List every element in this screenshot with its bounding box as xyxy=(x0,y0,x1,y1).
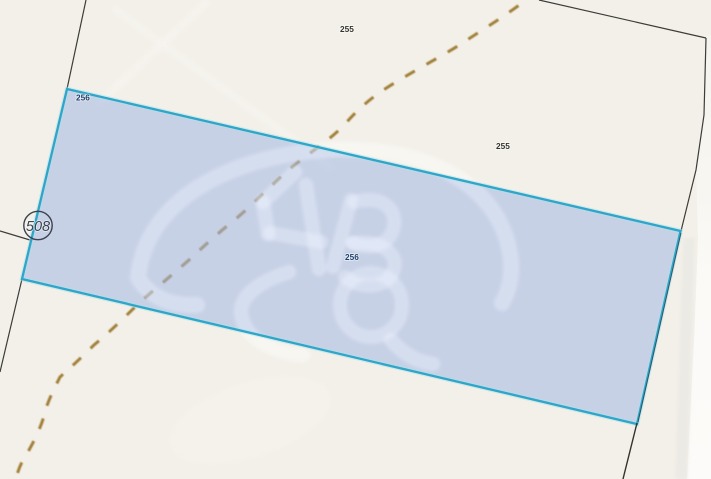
svg-text:508: 508 xyxy=(26,219,50,235)
svg-text:256: 256 xyxy=(345,252,359,262)
svg-text:256: 256 xyxy=(76,93,90,103)
svg-text:255: 255 xyxy=(496,141,510,151)
svg-text:255: 255 xyxy=(340,24,354,34)
